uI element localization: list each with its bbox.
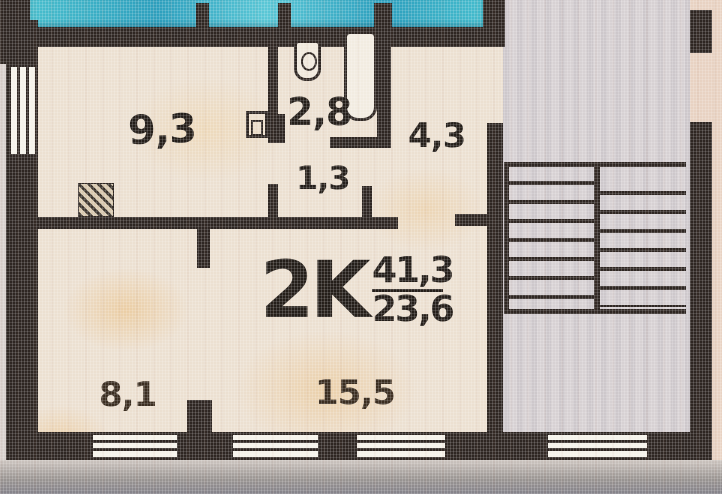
room-label-hallway: 4,3 bbox=[408, 119, 465, 153]
window-bottom-landing bbox=[548, 435, 647, 457]
stair-flight-left bbox=[509, 166, 594, 307]
wall-stairwell-outer bbox=[690, 122, 712, 460]
unit-type-label: 2K bbox=[260, 252, 367, 330]
window-bottom-2 bbox=[233, 435, 318, 457]
blue-band-top bbox=[30, 0, 483, 27]
wall-bathroom-right bbox=[377, 47, 391, 148]
window-bottom-1 bbox=[93, 435, 177, 457]
stair-divider bbox=[594, 162, 600, 314]
wall-stairwell-outer-top bbox=[690, 10, 712, 53]
stair-edge-bottom bbox=[504, 309, 686, 314]
staircase-icon bbox=[504, 162, 686, 314]
wall-partition-horizontal-right bbox=[455, 214, 503, 226]
stair-flight-right bbox=[600, 176, 686, 307]
wall-corridor-left-stub bbox=[268, 184, 278, 217]
room-label-bathroom: 2,8 bbox=[287, 93, 351, 131]
wall-room-divider-stub-top bbox=[197, 229, 210, 268]
wall-top-right-corner bbox=[483, 0, 505, 47]
window-left bbox=[11, 67, 35, 154]
sink-icon bbox=[246, 111, 268, 138]
photo-bottom-edge bbox=[0, 460, 722, 494]
living-area-value: 23,6 bbox=[372, 293, 446, 327]
wall-bathroom-bottom bbox=[330, 137, 391, 148]
room-label-bedroom: 8,1 bbox=[99, 378, 156, 412]
room-label-living: 15,5 bbox=[315, 376, 395, 410]
toilet-icon bbox=[294, 40, 321, 81]
floor-plan-photo: 9,3 2,8 4,3 1,3 8,1 15,5 2K 41,3 23,6 bbox=[0, 0, 722, 494]
wall-bathroom-left-jamb bbox=[268, 114, 285, 143]
wall-corridor-right-stub bbox=[362, 186, 372, 217]
room-label-corridor: 1,3 bbox=[296, 162, 350, 194]
stair-edge-top bbox=[504, 162, 686, 167]
vent-shaft-icon bbox=[78, 183, 114, 217]
wall-right-apartment bbox=[487, 123, 503, 462]
stair-edge-left bbox=[504, 162, 509, 314]
unit-area-fraction: 41,3 23,6 bbox=[372, 254, 446, 327]
blue-band-wall-mark bbox=[196, 3, 209, 27]
sink-basin-icon bbox=[251, 120, 263, 136]
wall-room-divider-stub-bottom bbox=[187, 400, 212, 432]
wall-top bbox=[6, 27, 505, 47]
toilet-bowl-icon bbox=[301, 52, 317, 71]
room-label-kitchen: 9,3 bbox=[127, 109, 196, 151]
blue-band-wall-mark bbox=[278, 3, 291, 27]
total-area-value: 41,3 bbox=[372, 254, 446, 288]
apartment-paper-area bbox=[6, 20, 503, 462]
blue-band-wall-mark bbox=[374, 3, 392, 27]
wall-partition-horizontal bbox=[38, 217, 398, 229]
window-bottom-3 bbox=[357, 435, 445, 457]
